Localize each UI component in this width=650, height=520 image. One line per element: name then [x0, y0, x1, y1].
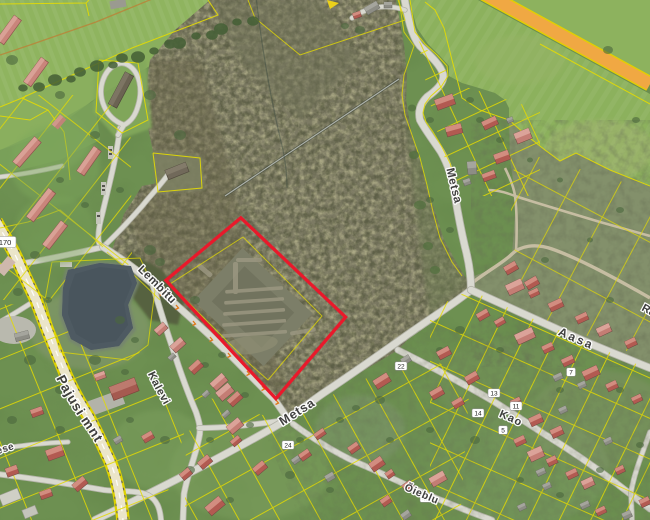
svg-text:11: 11 — [513, 403, 520, 410]
svg-text:4170: 4170 — [0, 238, 11, 247]
svg-text:14: 14 — [474, 410, 482, 417]
svg-text:13: 13 — [490, 390, 498, 397]
svg-text:24: 24 — [284, 442, 292, 449]
svg-text:22: 22 — [397, 363, 405, 370]
svg-text:7: 7 — [569, 369, 573, 376]
svg-text:5: 5 — [501, 427, 505, 434]
